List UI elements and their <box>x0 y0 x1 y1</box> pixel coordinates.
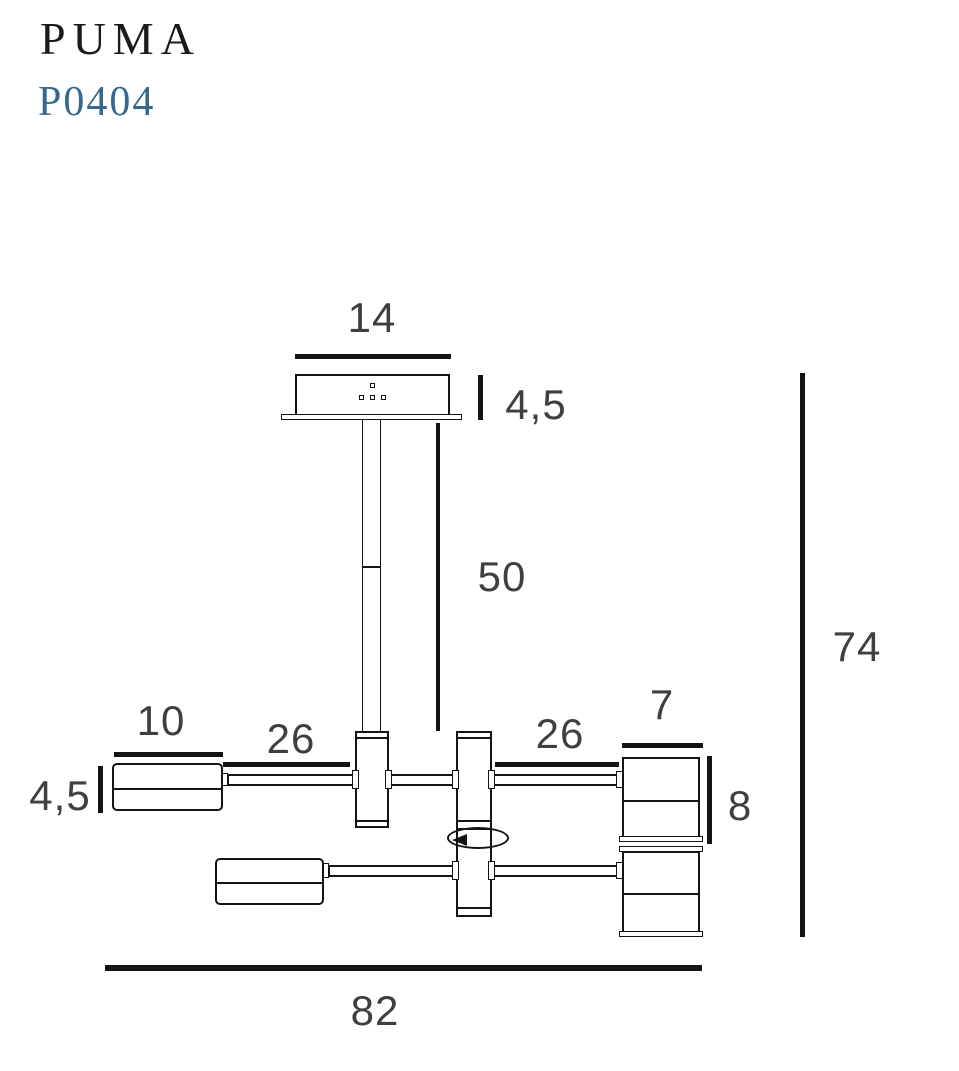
dim-line-right-shade-diameter <box>622 743 703 748</box>
screw-dot-icon <box>359 395 364 400</box>
dim-label-right-shade-height: 8 <box>680 782 800 830</box>
arm-flange <box>385 770 392 789</box>
dim-label-right-shade-diameter: 7 <box>602 681 722 729</box>
dim-line-overall-width <box>105 965 702 971</box>
upper-left-arm <box>227 774 355 786</box>
lower-left-shade <box>215 858 324 905</box>
screw-dot-icon <box>381 395 386 400</box>
shade-end-cap <box>619 836 703 842</box>
screw-dot-icon <box>370 395 375 400</box>
hub-connector-arm <box>389 774 456 786</box>
dim-line-left-shade-length <box>114 752 223 757</box>
dim-label-canopy-depth: 4,5 <box>476 381 596 429</box>
shade-seam-line <box>216 882 323 884</box>
dim-label-left-shade-length: 10 <box>101 697 221 745</box>
hub-cap-line <box>458 737 490 739</box>
spec-sheet-page: PUMA P0404 <box>0 0 959 1071</box>
product-name: PUMA <box>40 12 201 65</box>
lower-right-shade <box>622 851 700 933</box>
shade-seam-line <box>623 893 699 895</box>
shade-end-cap <box>619 931 703 937</box>
dim-line-canopy-width <box>295 354 451 359</box>
arm-flange <box>488 770 495 789</box>
arm-flange <box>452 770 459 789</box>
hub-band-line <box>458 820 490 822</box>
arm-flange <box>488 861 495 880</box>
product-code: P0404 <box>38 78 155 126</box>
dim-line-rod-length <box>436 423 440 731</box>
rotation-arrowhead-icon <box>452 834 467 846</box>
stem-joint-line <box>363 566 380 568</box>
upper-left-shade <box>112 763 223 811</box>
upper-right-arm <box>492 774 618 786</box>
dim-label-overall-width: 82 <box>315 987 435 1035</box>
hub-cap-line <box>357 820 387 822</box>
shade-seam-line <box>113 788 222 790</box>
lower-right-arm <box>492 865 618 877</box>
dim-label-overall-height: 74 <box>797 623 917 671</box>
dim-label-left-shade-diameter: 4,5 <box>0 772 120 820</box>
stem-rod <box>362 419 381 732</box>
screw-dot-icon <box>370 383 375 388</box>
hub-cap-line <box>458 907 490 909</box>
canopy-flange <box>281 414 462 420</box>
hub-cap-line <box>357 737 387 739</box>
center-hub <box>355 731 389 828</box>
swivel-hub <box>456 731 492 917</box>
dim-label-canopy-width: 14 <box>312 294 432 342</box>
arm-flange <box>452 861 459 880</box>
dim-line-right-arm-span <box>495 762 619 767</box>
dim-label-rod-length: 50 <box>442 553 562 601</box>
dim-label-left-arm-span: 26 <box>231 715 351 763</box>
arm-flange <box>352 770 359 789</box>
lower-left-arm <box>328 865 456 877</box>
